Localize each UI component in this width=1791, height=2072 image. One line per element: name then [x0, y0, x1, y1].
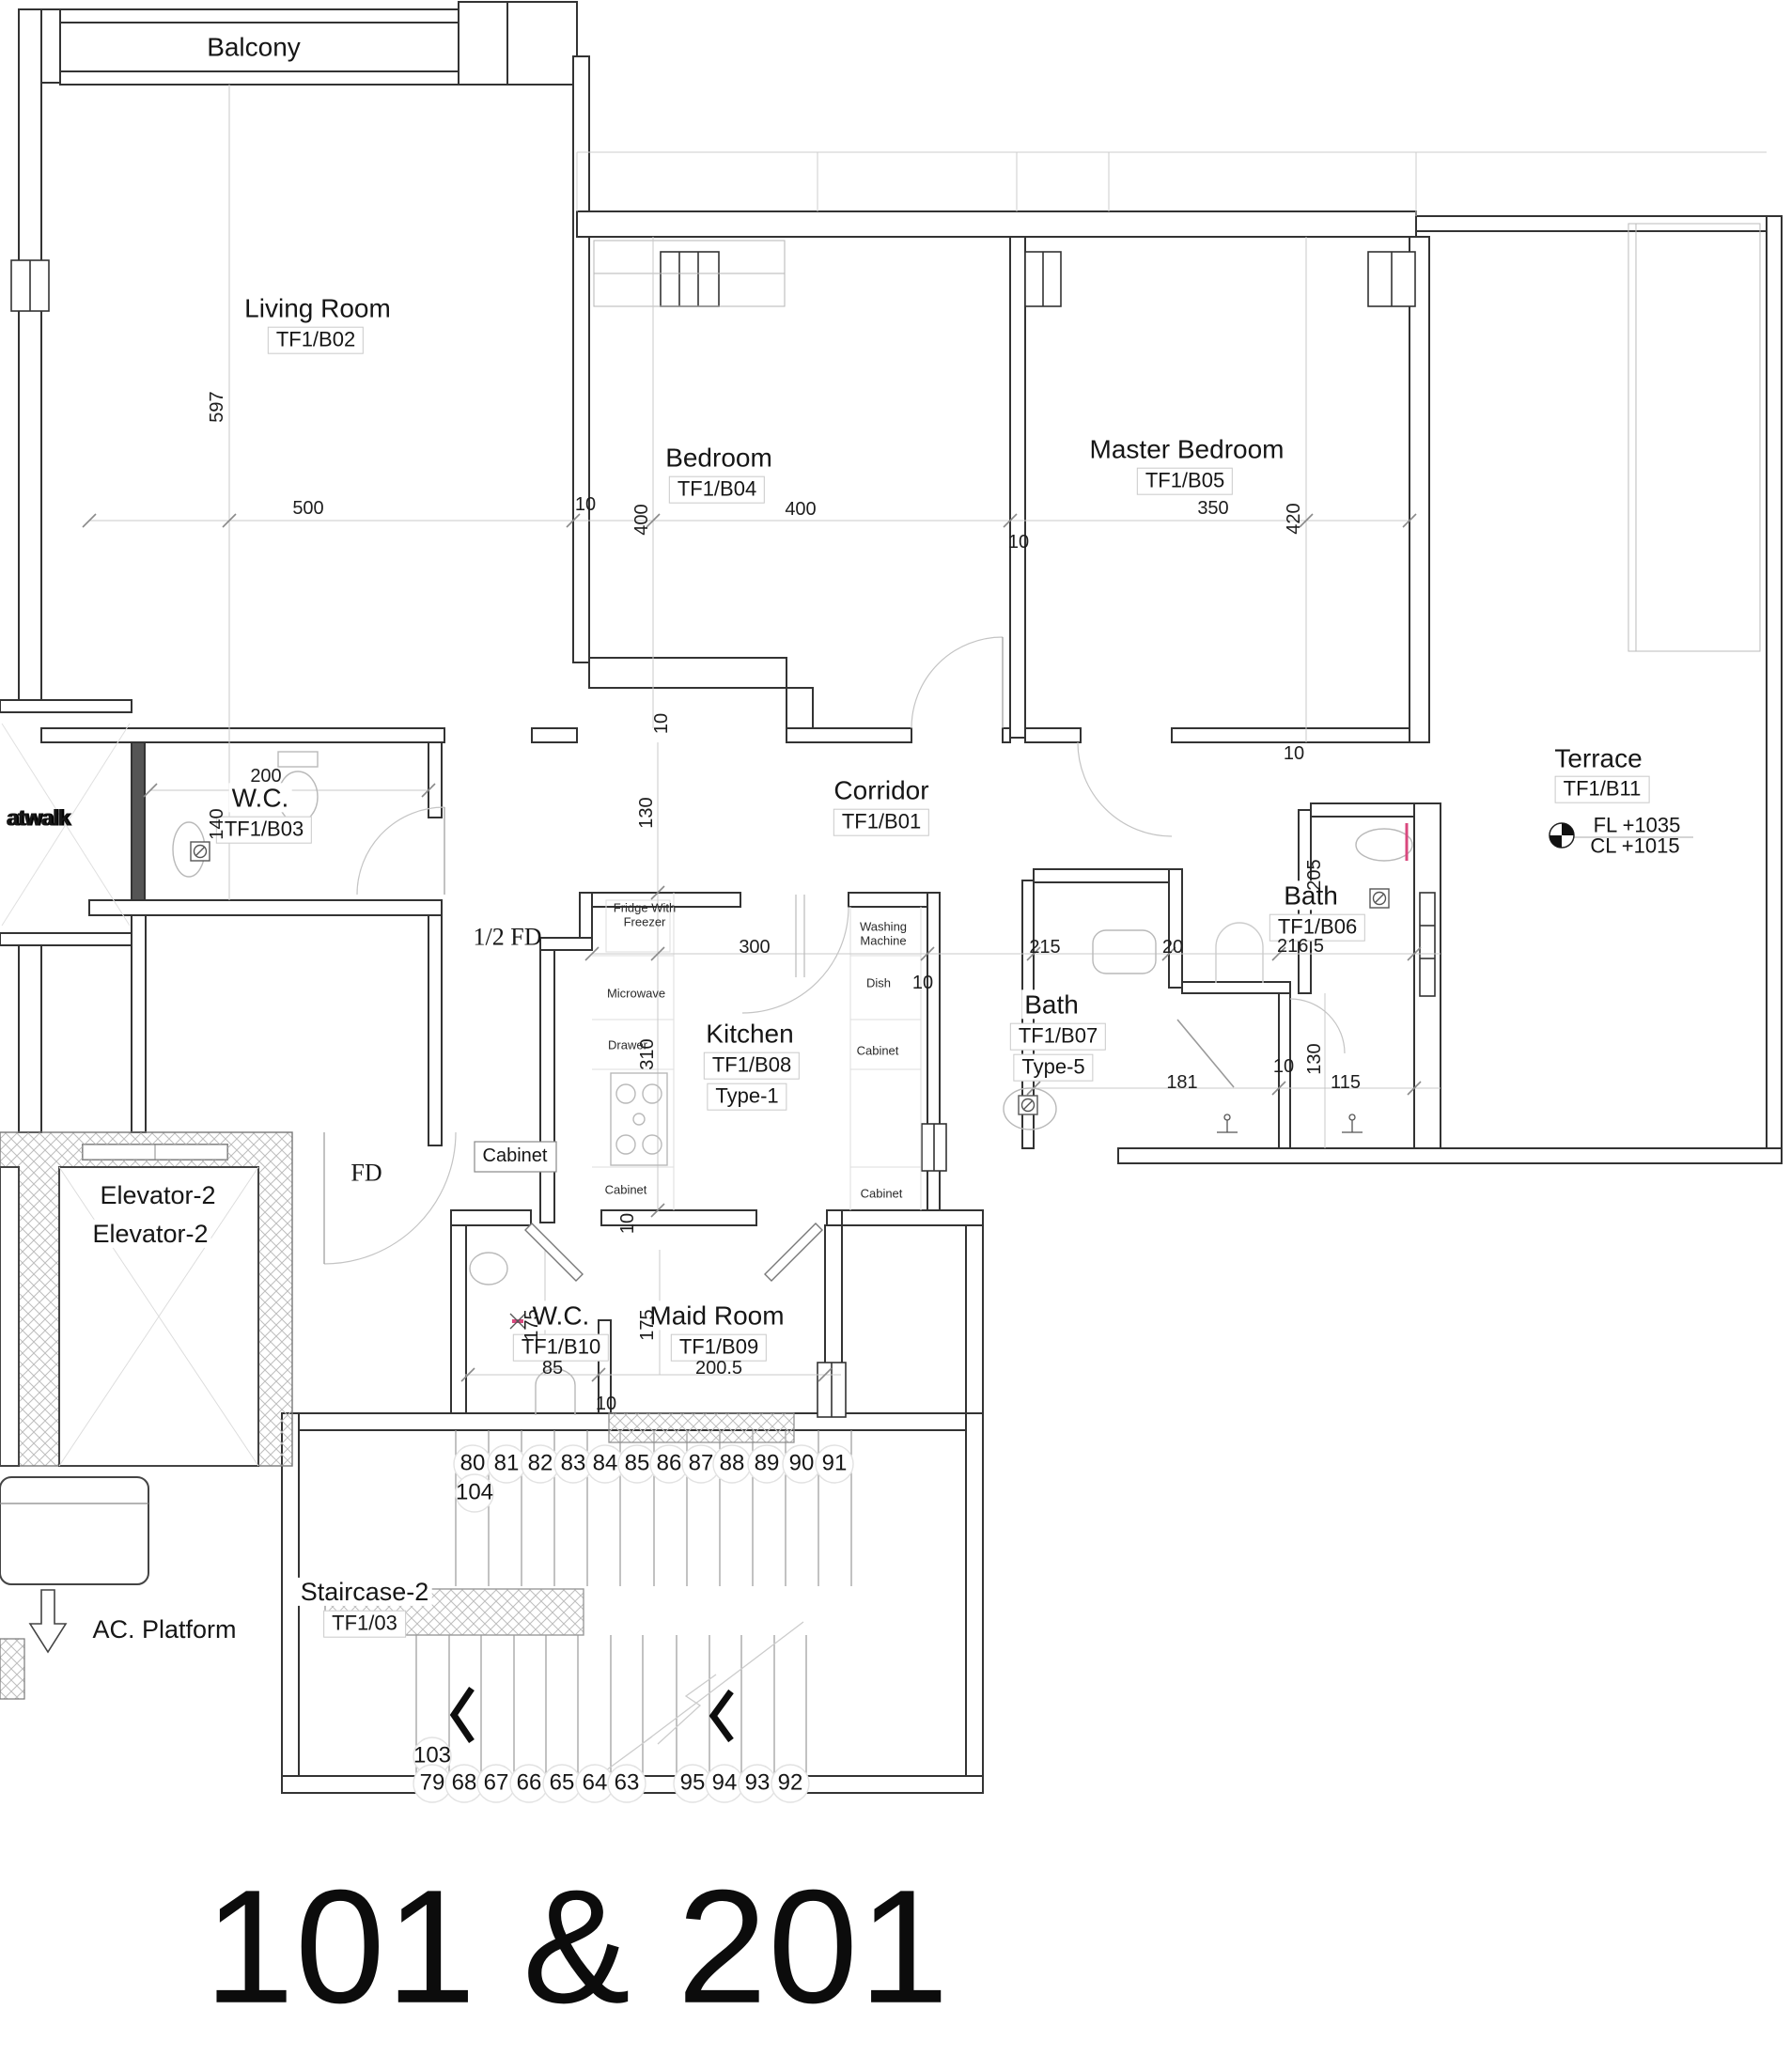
stair-number: 63 — [615, 1771, 640, 1797]
washing-machine-label: Washing Machine — [839, 920, 927, 947]
stair-number: 68 — [452, 1771, 477, 1797]
dim-bath7-door: 181 — [1166, 1072, 1197, 1093]
dim-living-width: 500 — [292, 498, 323, 519]
stair-number: 82 — [528, 1452, 553, 1477]
dim-bed-height: 400 — [631, 504, 652, 535]
ac-platform-label: AC. Platform — [89, 1615, 239, 1644]
stair-number: 94 — [712, 1771, 738, 1797]
stair-number: 85 — [625, 1452, 650, 1477]
level-marker-icon — [1550, 823, 1574, 848]
dim-kitchen-wall2: 10 — [617, 1213, 638, 1234]
ac-platform-unit — [0, 1477, 148, 1699]
dim-divider-wall: 10 — [1008, 532, 1029, 553]
microwave-label: Microwave — [607, 988, 665, 1002]
stair-number: 67 — [484, 1771, 509, 1797]
stair-number: 80 — [460, 1452, 486, 1477]
dim-maid-width: 200.5 — [695, 1358, 742, 1379]
wc-b03-label: W.C. — [229, 783, 292, 812]
terrace-code: TF1/B11 — [1555, 776, 1650, 803]
dim-wc-b03-height: 140 — [207, 808, 227, 839]
bath-b07-code: TF1/B07 — [1010, 1023, 1106, 1051]
down-arrow-icon — [30, 1590, 66, 1652]
dim-corridor-height: 130 — [636, 797, 657, 828]
living-room-label: Living Room — [241, 293, 394, 322]
catwalk-label: atwalk — [6, 807, 69, 833]
stair-number: 89 — [755, 1452, 780, 1477]
floor-plan-page: Balcony Living Room TF1/B02 597 500 Bedr… — [0, 0, 1791, 2072]
dim-wc-b10-width: 85 — [542, 1358, 563, 1379]
terrace-ceiling-level: CL +1015 — [1590, 835, 1679, 859]
stair-number: 95 — [680, 1771, 706, 1797]
dim-kitchen-width: 300 — [739, 937, 770, 958]
cabinet-box-label: Cabinet — [483, 1145, 548, 1166]
kitchen-fixtures — [611, 1073, 667, 1165]
corridor-code: TF1/B01 — [833, 809, 929, 836]
elevator-label-1: Elevator-2 — [97, 1181, 218, 1209]
maid-door-leaves — [525, 1223, 822, 1281]
kitchen-type: Type-1 — [707, 1083, 786, 1111]
stair-number: 90 — [789, 1452, 815, 1477]
cabinet-right2-label: Cabinet — [861, 1188, 903, 1202]
bedroom-code: TF1/B04 — [669, 476, 765, 504]
dim-master-right-wall: 10 — [1284, 743, 1304, 764]
stair-mark-104: 104 — [456, 1481, 493, 1506]
stair-number: 79 — [420, 1771, 445, 1797]
dim-bath7-wall: 10 — [1273, 1056, 1294, 1077]
walls — [0, 2, 1782, 1793]
drain-icon-b07 — [1019, 1096, 1037, 1114]
stair-number: 91 — [822, 1452, 848, 1477]
stair-number: 86 — [657, 1452, 682, 1477]
dim-master-height: 420 — [1284, 503, 1304, 534]
dim-wc-b10-wall: 10 — [596, 1394, 616, 1414]
stair-number: 65 — [550, 1771, 575, 1797]
faucet-icon-1 — [1217, 1114, 1238, 1132]
stair-number: 93 — [745, 1771, 771, 1797]
living-room-code: TF1/B02 — [268, 327, 364, 354]
stair-number: 83 — [561, 1452, 586, 1477]
wc-b03-code: TF1/B03 — [216, 817, 312, 844]
stair-number: 81 — [494, 1452, 520, 1477]
dim-master-width: 350 — [1197, 498, 1228, 519]
stair-number: 66 — [517, 1771, 542, 1797]
kitchen-label: Kitchen — [703, 1019, 796, 1048]
maid-room-label: Maid Room — [646, 1301, 786, 1330]
drain-icon-b03 — [191, 842, 210, 861]
stair-number: 87 — [689, 1452, 714, 1477]
stair-number: 84 — [593, 1452, 618, 1477]
faucet-icon-2 — [1342, 1114, 1363, 1132]
stair-number: 64 — [583, 1771, 608, 1797]
cabinet-right1-label: Cabinet — [857, 1045, 899, 1059]
dim-bath6-height: 205 — [1304, 859, 1325, 890]
bath-b07-label: Bath — [1021, 989, 1082, 1019]
dim-wall-10b: 10 — [651, 713, 672, 734]
fridge-label: Fridge With Freezer — [600, 901, 689, 928]
stair-mark-103: 103 — [413, 1744, 451, 1769]
bathroom-fixtures — [173, 752, 1412, 1415]
unit-title: 101 & 201 — [204, 1857, 949, 2038]
dim-bed-wall: 10 — [575, 494, 596, 515]
elevator-label-2: Elevator-2 — [89, 1220, 210, 1248]
dim-bath6-width: 216.5 — [1277, 936, 1324, 957]
dim-maid-height: 175 — [637, 1309, 658, 1340]
dim-bath7-height: 130 — [1304, 1043, 1325, 1074]
staircase-label: Staircase-2 — [298, 1578, 432, 1606]
drain-icon-b06 — [1370, 889, 1389, 908]
staircase-code: TF1/03 — [323, 1611, 406, 1638]
stair-number: 92 — [778, 1771, 803, 1797]
dim-bed-width: 400 — [785, 499, 816, 520]
dim-wc-b03-width: 200 — [250, 766, 281, 787]
dim-kitchen-wall: 10 — [912, 973, 933, 993]
dish-label: Dish — [866, 977, 891, 991]
master-bedroom-label: Master Bedroom — [1087, 434, 1287, 463]
corridor-label: Corridor — [831, 775, 931, 804]
terrace-label: Terrace — [1551, 743, 1644, 772]
master-bedroom-code: TF1/B05 — [1137, 468, 1233, 495]
kitchen-code: TF1/B08 — [704, 1052, 800, 1080]
dim-wc-b10-height: 175 — [522, 1309, 542, 1340]
cabinet-left-label: Cabinet — [605, 1184, 647, 1198]
bath-b07-type: Type-5 — [1013, 1054, 1093, 1082]
fd-label: FD — [350, 1159, 382, 1186]
drawer-label: Drawer — [608, 1039, 647, 1053]
dim-living-height: 597 — [207, 391, 227, 422]
bedroom-label: Bedroom — [662, 443, 775, 472]
dim-bath7-width: 215 — [1029, 937, 1060, 958]
balcony-label: Balcony — [204, 32, 304, 61]
dim-bath-wall-20: 20 — [1162, 937, 1183, 958]
stair-number: 88 — [720, 1452, 745, 1477]
dim-bath-right: 115 — [1331, 1072, 1361, 1093]
half-fd-label: 1/2 FD — [474, 923, 542, 950]
